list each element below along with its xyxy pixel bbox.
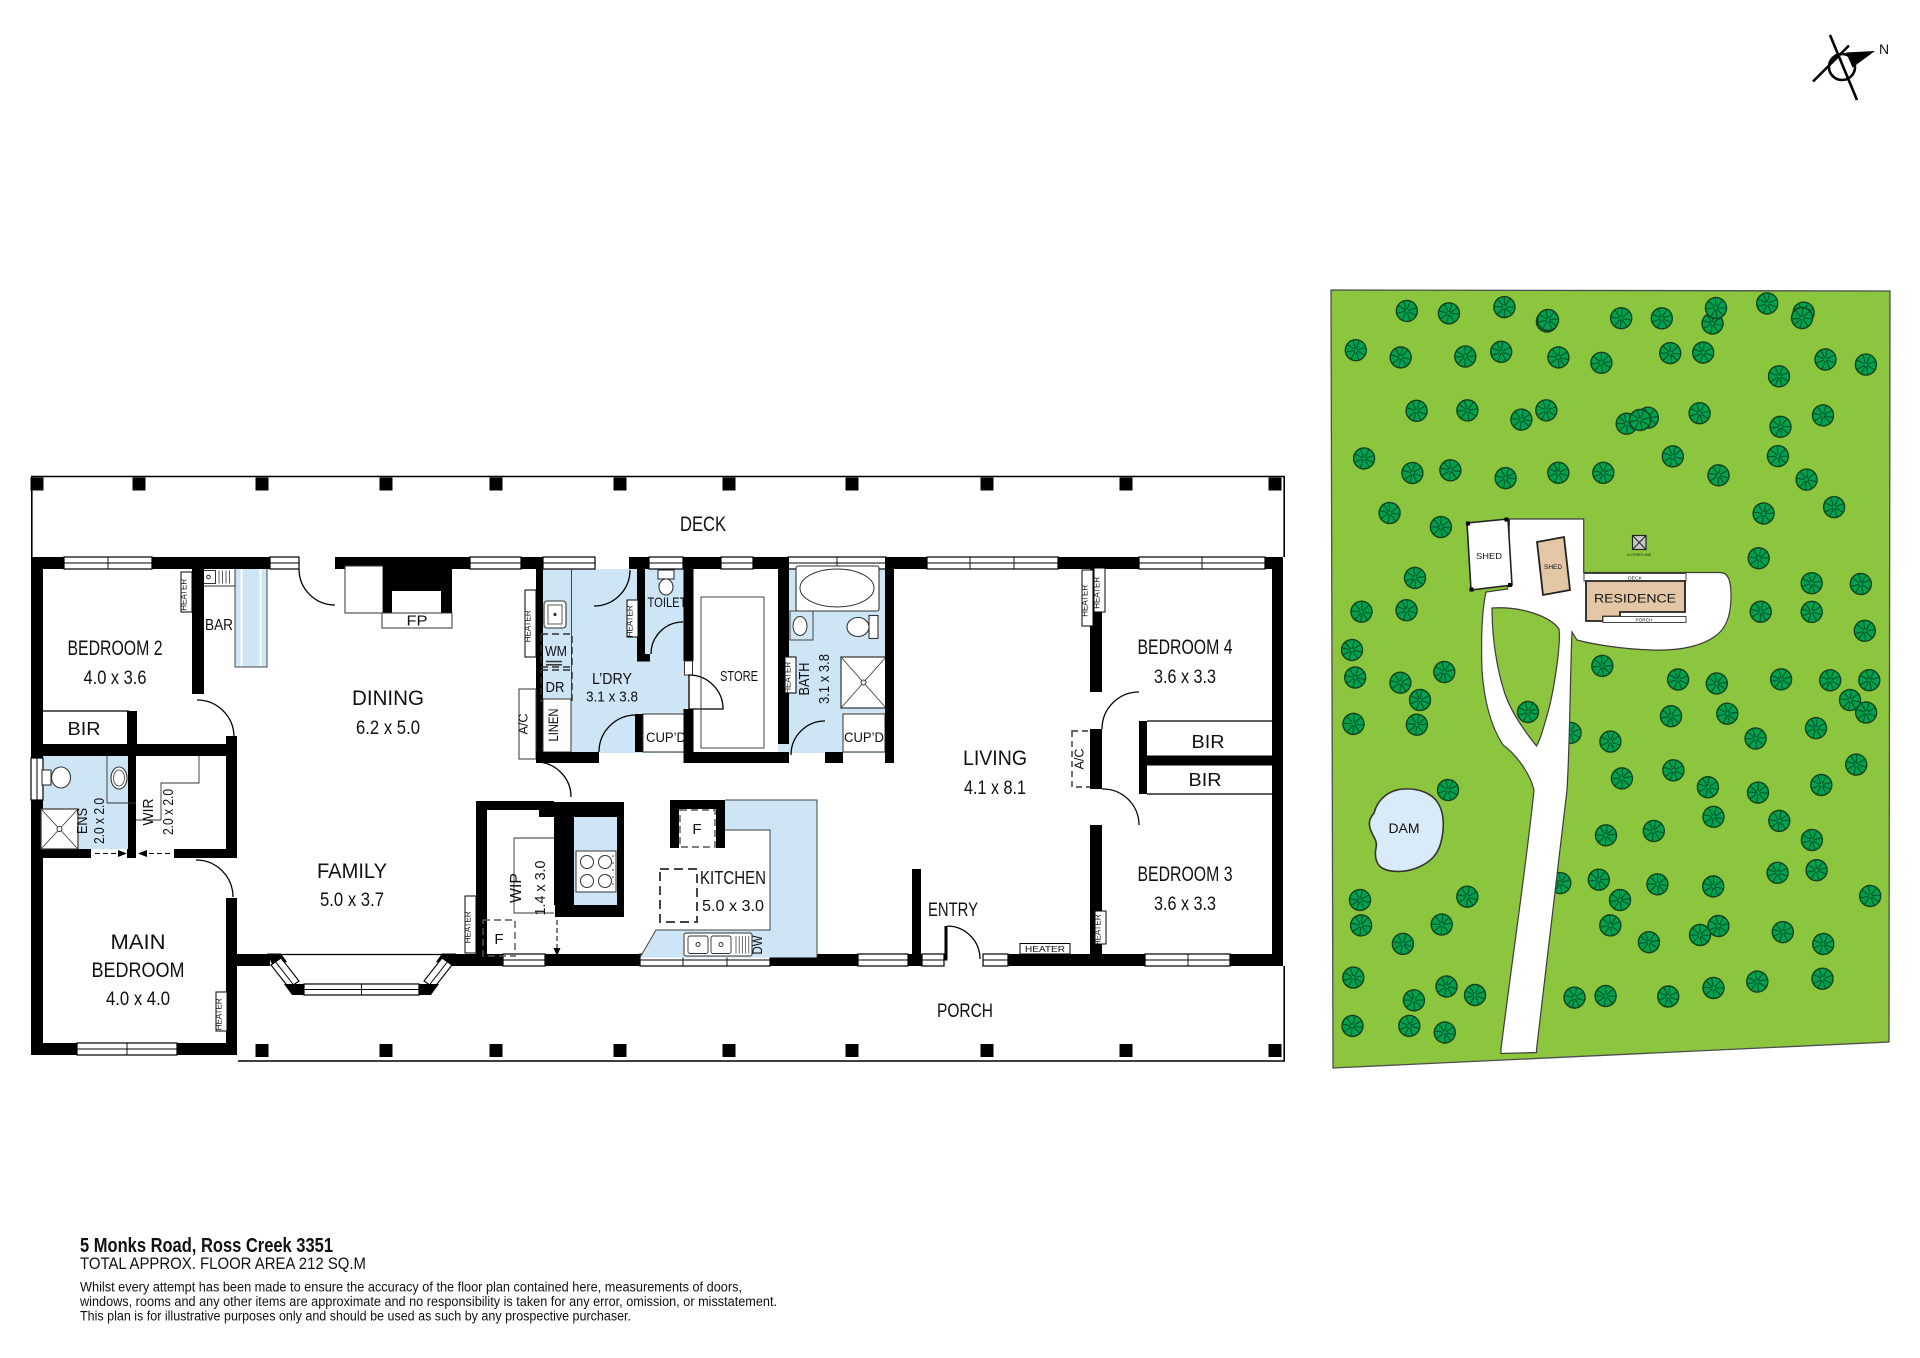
svg-text:RESIDENCE: RESIDENCE [1594,594,1676,606]
svg-text:N: N [1879,41,1889,57]
svg-text:KITCHEN: KITCHEN [700,868,766,888]
svg-text:This plan is for illustrative: This plan is for illustrative purposes o… [80,1309,631,1324]
svg-text:WIP: WIP [508,873,525,903]
svg-text:DW: DW [749,935,765,955]
svg-text:HEATER: HEATER [626,605,635,637]
svg-text:3.6 x 3.3: 3.6 x 3.3 [1154,667,1216,688]
svg-text:MAIN: MAIN [111,931,166,954]
svg-text:5.0 x 3.7: 5.0 x 3.7 [320,890,384,911]
svg-text:2.0 x 2.0: 2.0 x 2.0 [160,789,177,835]
svg-text:4.0 x 3.6: 4.0 x 3.6 [84,668,147,689]
svg-text:HEATER: HEATER [524,610,533,642]
svg-text:BEDROOM 3: BEDROOM 3 [1138,863,1233,886]
svg-text:CUP’D: CUP’D [646,729,686,745]
svg-text:BEDROOM 2: BEDROOM 2 [68,637,163,660]
svg-text:BAR: BAR [205,617,233,634]
svg-text:CUP’D: CUP’D [844,729,884,745]
svg-text:windows, rooms and any other i: windows, rooms and any other items are a… [79,1294,777,1309]
svg-text:DR: DR [546,679,565,696]
svg-text:5.0 x 3.0: 5.0 x 3.0 [702,898,764,915]
svg-text:BIR: BIR [68,719,101,739]
svg-text:A/C: A/C [516,714,531,735]
svg-text:Whilst every attempt has been: Whilst every attempt has been made to en… [80,1280,742,1295]
svg-text:DECK: DECK [1628,576,1642,581]
svg-text:CLOTHES LINE: CLOTHES LINE [1627,553,1651,557]
svg-text:LINEN: LINEN [545,709,561,742]
svg-text:F: F [494,931,503,948]
svg-text:L’DRY: L’DRY [592,671,632,688]
svg-text:STORE: STORE [720,668,758,685]
svg-text:F: F [692,821,701,838]
svg-text:HEATER: HEATER [464,911,473,943]
svg-text:FAMILY: FAMILY [317,860,387,883]
svg-text:HEATER: HEATER [1025,944,1065,954]
svg-text:3.1 x 3.8: 3.1 x 3.8 [816,654,833,704]
svg-text:3.6 x 3.3: 3.6 x 3.3 [1154,894,1216,915]
svg-text:ENS: ENS [74,808,91,834]
svg-text:BEDROOM: BEDROOM [92,959,185,982]
svg-text:PORCH: PORCH [1636,618,1653,623]
svg-text:HEATER: HEATER [1081,585,1090,617]
svg-text:DINING: DINING [352,687,424,710]
svg-text:DECK: DECK [680,513,726,536]
svg-text:DAM: DAM [1388,820,1419,836]
svg-text:HEATER: HEATER [215,998,224,1030]
svg-text:4.0 x 4.0: 4.0 x 4.0 [106,989,170,1010]
svg-text:SHED: SHED [1544,564,1562,571]
svg-text:BATH: BATH [796,663,813,696]
svg-text:FP: FP [407,613,428,630]
svg-text:BEDROOM 4: BEDROOM 4 [1138,636,1233,659]
svg-text:4.1 x 8.1: 4.1 x 8.1 [964,778,1026,799]
svg-text:HEATER: HEATER [1094,914,1103,946]
svg-text:A/C: A/C [1072,749,1087,770]
svg-text:WM: WM [545,643,567,660]
svg-text:BIR: BIR [1192,732,1225,752]
svg-text:TOILET: TOILET [648,594,687,610]
svg-text:3.1 x 3.8: 3.1 x 3.8 [586,689,638,706]
svg-text:WIR: WIR [140,798,157,825]
svg-text:6.2 x 5.0: 6.2 x 5.0 [356,718,420,739]
svg-text:PORCH: PORCH [937,1001,993,1022]
svg-text:1.4 x 3.0: 1.4 x 3.0 [532,861,549,916]
svg-text:HEATER: HEATER [1093,577,1102,609]
svg-text:SHED: SHED [1476,551,1502,561]
svg-text:2.0 x 2.0: 2.0 x 2.0 [91,798,108,844]
svg-text:HEATER: HEATER [180,579,189,611]
svg-text:ENTRY: ENTRY [928,900,978,921]
svg-text:5 Monks Road, Ross Creek 3351: 5 Monks Road, Ross Creek 3351 [80,1234,333,1257]
svg-text:LIVING: LIVING [963,747,1027,770]
svg-text:TOTAL APPROX. FLOOR AREA 212 S: TOTAL APPROX. FLOOR AREA 212 SQ.M [80,1255,366,1273]
svg-text:HEATER: HEATER [784,662,793,694]
svg-text:BIR: BIR [1189,770,1222,790]
